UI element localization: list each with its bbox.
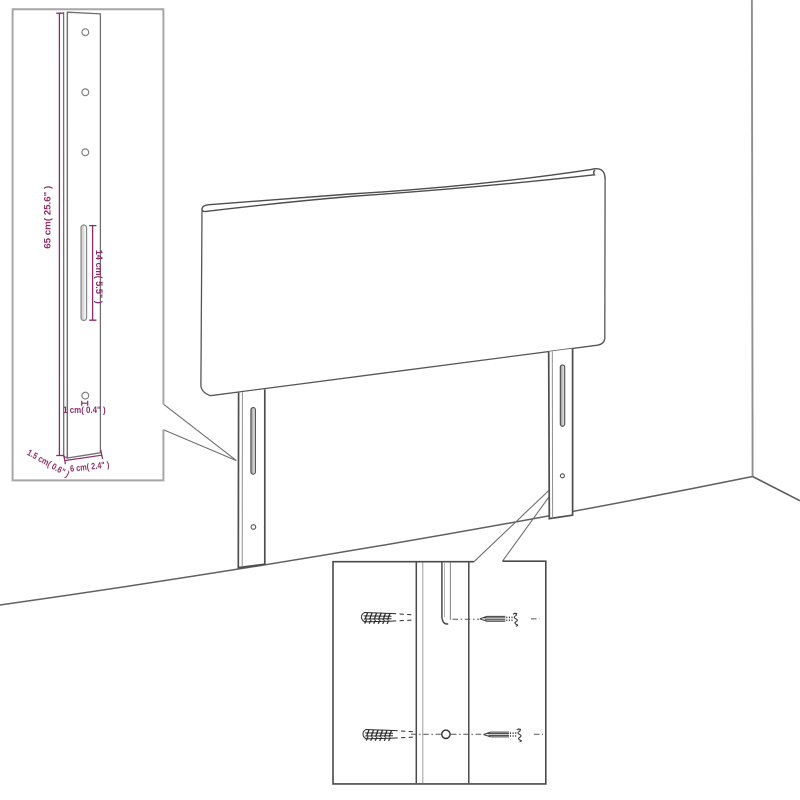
svg-text:14 cm( 5.5" ): 14 cm( 5.5" ) <box>93 250 104 304</box>
svg-text:1 cm( 0.4" ): 1 cm( 0.4" ) <box>63 405 106 415</box>
svg-text:65 cm( 25.6" ): 65 cm( 25.6" ) <box>43 186 54 249</box>
